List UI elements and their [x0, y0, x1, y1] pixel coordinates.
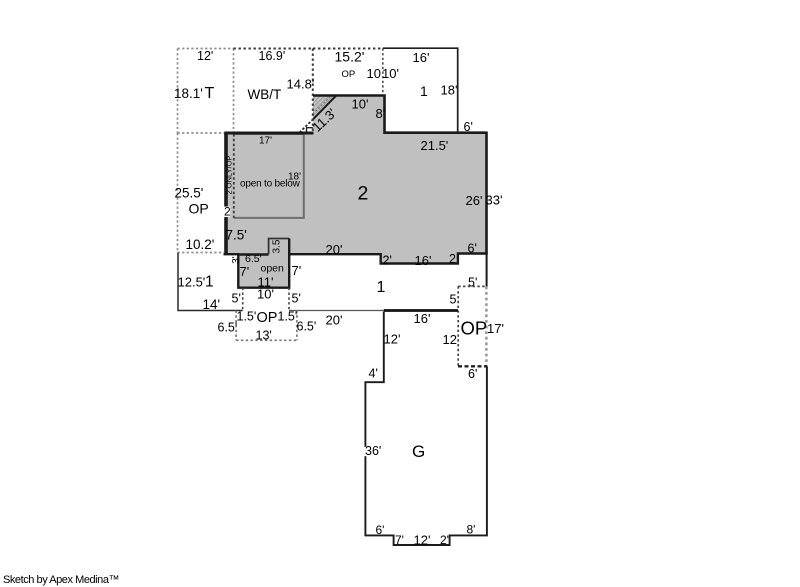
svg-text:12.5': 12.5'	[178, 275, 206, 290]
svg-text:Sketch by Apex Medina™: Sketch by Apex Medina™	[3, 574, 119, 586]
svg-text:26': 26'	[466, 193, 483, 208]
svg-text:10': 10'	[352, 97, 369, 112]
svg-text:5': 5'	[232, 292, 241, 306]
svg-text:open to below: open to below	[240, 179, 301, 190]
svg-text:T: T	[205, 85, 215, 102]
svg-text:7.5': 7.5'	[226, 228, 247, 243]
svg-text:6': 6'	[468, 367, 477, 381]
svg-text:10: 10	[367, 66, 381, 81]
svg-text:14': 14'	[203, 297, 221, 312]
svg-text:16.9': 16.9'	[259, 49, 286, 63]
svg-text:OP: OP	[189, 201, 209, 217]
svg-text:14.8': 14.8'	[287, 77, 315, 92]
svg-text:8': 8'	[467, 523, 476, 537]
svg-text:6.5': 6.5'	[218, 321, 238, 335]
svg-text:1: 1	[377, 279, 386, 296]
svg-text:10': 10'	[382, 66, 399, 81]
svg-text:7': 7'	[292, 263, 302, 278]
svg-text:21.5': 21.5'	[421, 138, 449, 153]
svg-text:open: open	[261, 263, 285, 275]
svg-text:13': 13'	[256, 329, 272, 343]
svg-text:2: 2	[224, 205, 231, 219]
svg-text:10': 10'	[257, 287, 274, 302]
svg-text:16': 16'	[413, 50, 430, 65]
svg-text:12: 12	[443, 332, 457, 347]
svg-text:17': 17'	[259, 136, 272, 147]
svg-text:7': 7'	[395, 533, 404, 547]
svg-text:6': 6'	[464, 120, 473, 134]
svg-text:18': 18'	[441, 83, 458, 98]
svg-text:17': 17'	[487, 321, 504, 336]
svg-text:12': 12'	[414, 533, 431, 548]
svg-text:1.5': 1.5'	[237, 310, 257, 324]
svg-text:2': 2'	[383, 254, 392, 268]
svg-text:3': 3'	[231, 256, 242, 264]
svg-text:2: 2	[358, 183, 369, 205]
svg-text:1: 1	[420, 83, 428, 99]
svg-text:1.5': 1.5'	[278, 310, 298, 324]
svg-text:15.2': 15.2'	[335, 49, 365, 65]
svg-text:2': 2'	[440, 533, 449, 547]
svg-text:3.5: 3.5	[272, 239, 283, 253]
svg-text:20': 20'	[326, 242, 343, 257]
svg-text:12': 12'	[384, 332, 401, 347]
svg-text:OP: OP	[461, 318, 488, 339]
svg-text:6': 6'	[376, 523, 385, 537]
svg-text:2 ONLY/OP: 2 ONLY/OP	[225, 155, 234, 194]
svg-text:OP: OP	[257, 310, 278, 326]
svg-text:7': 7'	[240, 264, 250, 279]
svg-text:25.5': 25.5'	[175, 186, 204, 201]
svg-text:16': 16'	[415, 253, 432, 268]
svg-text:36': 36'	[365, 444, 381, 458]
svg-text:6': 6'	[468, 242, 477, 256]
svg-text:4': 4'	[369, 367, 378, 381]
svg-text:5': 5'	[292, 292, 301, 306]
svg-text:6.5': 6.5'	[297, 320, 317, 334]
svg-text:33': 33'	[486, 193, 503, 208]
svg-text:2: 2	[449, 252, 456, 266]
svg-text:12': 12'	[197, 49, 213, 63]
svg-text:18.1': 18.1'	[174, 86, 203, 101]
svg-text:20': 20'	[326, 313, 343, 328]
svg-text:8': 8'	[376, 106, 386, 121]
svg-text:OP: OP	[342, 69, 356, 80]
svg-text:10.2': 10.2'	[186, 237, 215, 252]
svg-text:5: 5	[450, 293, 457, 307]
svg-text:WB/T: WB/T	[248, 87, 282, 102]
svg-text:16': 16'	[414, 311, 431, 326]
svg-text:1: 1	[205, 274, 214, 291]
svg-text:5': 5'	[468, 276, 477, 290]
svg-text:G: G	[412, 442, 425, 461]
